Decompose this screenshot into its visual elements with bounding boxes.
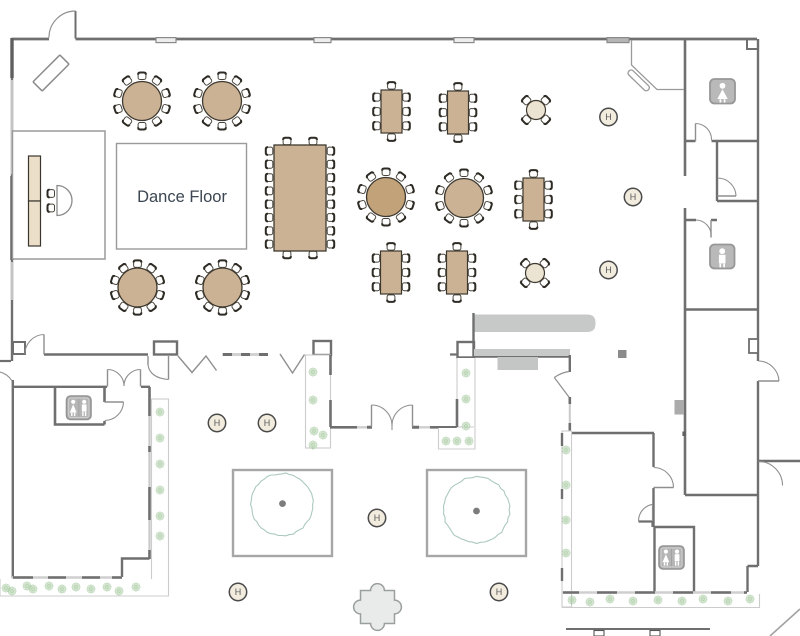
svg-text:H: H <box>214 418 221 428</box>
svg-text:H: H <box>630 192 637 202</box>
svg-text:H: H <box>605 112 612 122</box>
svg-text:Dance Floor: Dance Floor <box>137 188 227 206</box>
svg-text:H: H <box>235 587 242 597</box>
svg-text:H: H <box>264 418 271 428</box>
svg-text:H: H <box>605 265 612 275</box>
svg-text:H: H <box>374 513 381 523</box>
svg-text:H: H <box>496 587 503 597</box>
